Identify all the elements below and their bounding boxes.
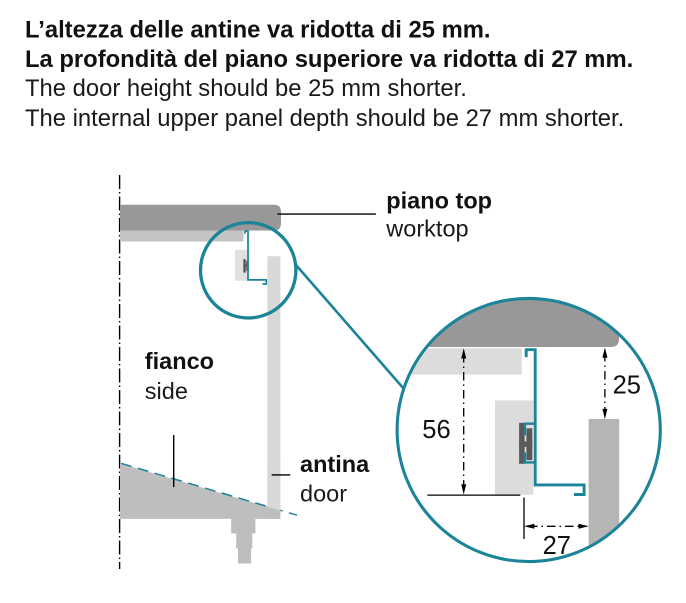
svg-text:La profondità del piano superi: La profondità del piano superiore va rid… — [25, 46, 633, 73]
svg-text:antina: antina — [300, 451, 370, 477]
svg-text:fianco: fianco — [145, 348, 214, 374]
svg-text:piano top: piano top — [386, 187, 492, 213]
svg-text:The internal upper panel depth: The internal upper panel depth should be… — [25, 105, 624, 132]
svg-text:L’altezza delle antine va rido: L’altezza delle antine va ridotta di 25 … — [25, 16, 491, 43]
svg-text:56: 56 — [422, 416, 450, 444]
svg-text:door: door — [300, 481, 347, 507]
svg-text:worktop: worktop — [385, 216, 468, 242]
svg-text:25: 25 — [613, 372, 641, 400]
svg-text:The door height should be 25 m: The door height should be 25 mm shorter. — [25, 75, 467, 102]
svg-text:side: side — [145, 378, 188, 404]
